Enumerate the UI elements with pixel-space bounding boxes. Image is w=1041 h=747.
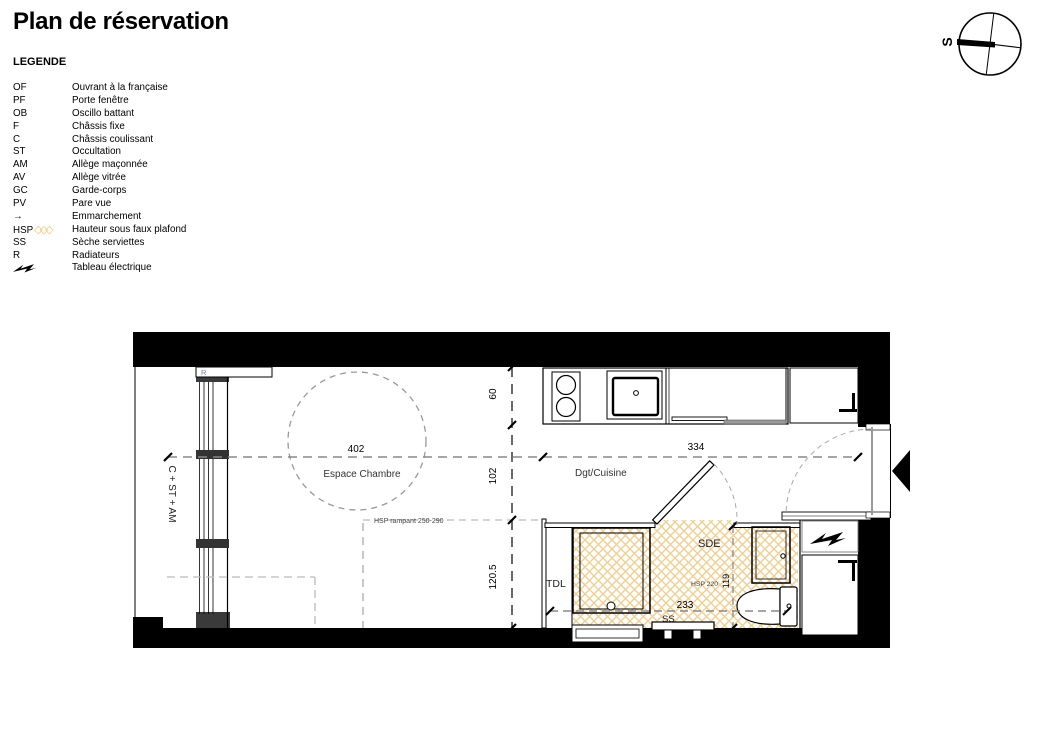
faucet [634,391,639,396]
sde-door-swing-arc [714,464,737,525]
legend-row: AMAllège maçonnée [13,159,293,172]
legend-row: PVPare vue [13,198,293,211]
legend-desc: Allège maçonnée [72,159,148,172]
legend-row: GCGarde-corps [13,185,293,198]
legend-heading: LEGENDE [13,56,66,68]
legend-desc: Hauteur sous faux plafond [72,224,186,237]
wall-corner-bottom-left [133,617,163,629]
legend-abbr: PV [13,198,26,209]
legend-desc: Occultation [72,146,121,159]
arrow-right-icon: → [13,211,23,222]
compass-needle [957,39,995,48]
turning-circle [288,372,426,510]
shower-drain [607,602,615,610]
legend-abbr: OF [13,82,27,93]
dim-402: 402 [348,444,365,455]
north-compass: S [939,9,1025,78]
dim-horizontal: 402 334 [164,442,862,461]
dim-60: 60 [488,388,499,400]
wall-top [133,332,890,367]
legend-desc: Allège vitrée [72,172,126,185]
legend-desc: Ouvrant à la française [72,82,168,95]
legend-desc: Châssis fixe [72,121,125,134]
hsp-rampant: HSP rampant 250-290 [363,518,545,628]
legend-abbr: ST [13,146,26,157]
window-left: C + ST + AM [135,367,230,628]
legend-abbr: AM [13,159,28,170]
legend-desc: Sèche serviettes [72,237,144,250]
legend-desc: Emmarchement [72,211,141,224]
legend-desc: Tableau électrique [72,262,152,275]
room-label-sde: SDE [698,538,721,550]
kitchen-counter [543,368,788,424]
page: { "page_title": "Plan de réservation", "… [0,0,1041,747]
legend-abbr: PF [13,95,26,106]
legend-desc: Porte fenêtre [72,95,129,108]
wall-bottom [133,628,890,648]
entry-arrow [892,450,910,492]
svg-text:233: 233 [677,600,694,611]
compass-label: S [939,37,955,46]
legend-row: HSP◇◇◇Hauteur sous faux plafond [13,224,293,237]
entrance-door [786,424,910,518]
hsp-rampant-label: HSP rampant 250-290 [374,518,444,525]
furniture-outline [167,577,315,628]
door-jamb [866,512,890,518]
window-left-label: C + ST + AM [166,465,177,522]
legend-row: CChâssis coulissant [13,134,293,147]
legend-abbr: C [13,134,20,145]
window-slider-junction [196,539,229,548]
legend-row: OFOuvrant à la française [13,82,293,95]
dim-334: 334 [688,442,705,453]
dim-vertical: 60 102 120.5 [488,363,516,632]
wall-tdl [542,519,546,628]
legend-desc: Oscillo battant [72,108,134,121]
closet-lower-right [802,555,858,635]
legend-row: Tableau électrique [13,262,293,275]
legend-abbr: HSP [13,225,33,236]
svg-text:119: 119 [721,574,731,588]
legend-desc: Châssis coulissant [72,134,153,147]
legend-abbr: F [13,121,19,132]
closet-entrance [790,368,858,423]
legend-abbr: AV [13,172,25,183]
room-label-cuisine: Dgt/Cuisine [575,468,627,479]
legend-desc: Radiateurs [72,250,119,263]
room-label-tdl: TDL [546,578,566,590]
legend-abbr: OB [13,108,27,119]
hatch-swatch-icon: ◇◇◇ [34,224,50,236]
room-label-chambre: Espace Chambre [323,469,401,480]
dim-102: 102 [488,467,499,484]
legend: OFOuvrant à la française PFPorte fenêtre… [13,82,293,275]
legend-abbr: R [13,250,20,261]
legend-abbr: GC [13,185,28,196]
cabinet-under-shower [572,625,643,642]
legend-row: SSSèche serviettes [13,237,293,250]
wall-right-lower [858,515,890,628]
legend-row: FChâssis fixe [13,121,293,134]
sde-room: TDL SDE HSP 220 233 [542,461,800,642]
legend-row: OBOscillo battant [13,108,293,121]
page-title: Plan de réservation [13,8,229,36]
faucet [781,554,785,558]
entrance-door-swing-arc [786,429,872,514]
entry-shelf [782,512,871,520]
legend-row: →Emmarchement [13,211,293,224]
sde-wall-left [545,523,655,528]
hsp-sde-label: HSP 220 [691,581,718,588]
legend-row: RRadiateurs [13,250,293,263]
lightning-icon [13,263,36,273]
legend-abbr: SS [13,237,26,248]
legend-desc: Garde-corps [72,185,126,198]
legend-desc: Pare vue [72,198,111,211]
dim-120-5: 120.5 [488,564,499,589]
wall-right-upper [858,367,890,427]
radiator: R [196,367,272,377]
legend-row: AVAllège vitrée [13,172,293,185]
sde-door [653,461,737,525]
radiator-label: R [201,368,207,377]
electric-panel [802,521,858,552]
legend-row: STOccultation [13,146,293,159]
legend-row: PFPorte fenêtre [13,95,293,108]
door-threshold-hatch [656,520,734,527]
